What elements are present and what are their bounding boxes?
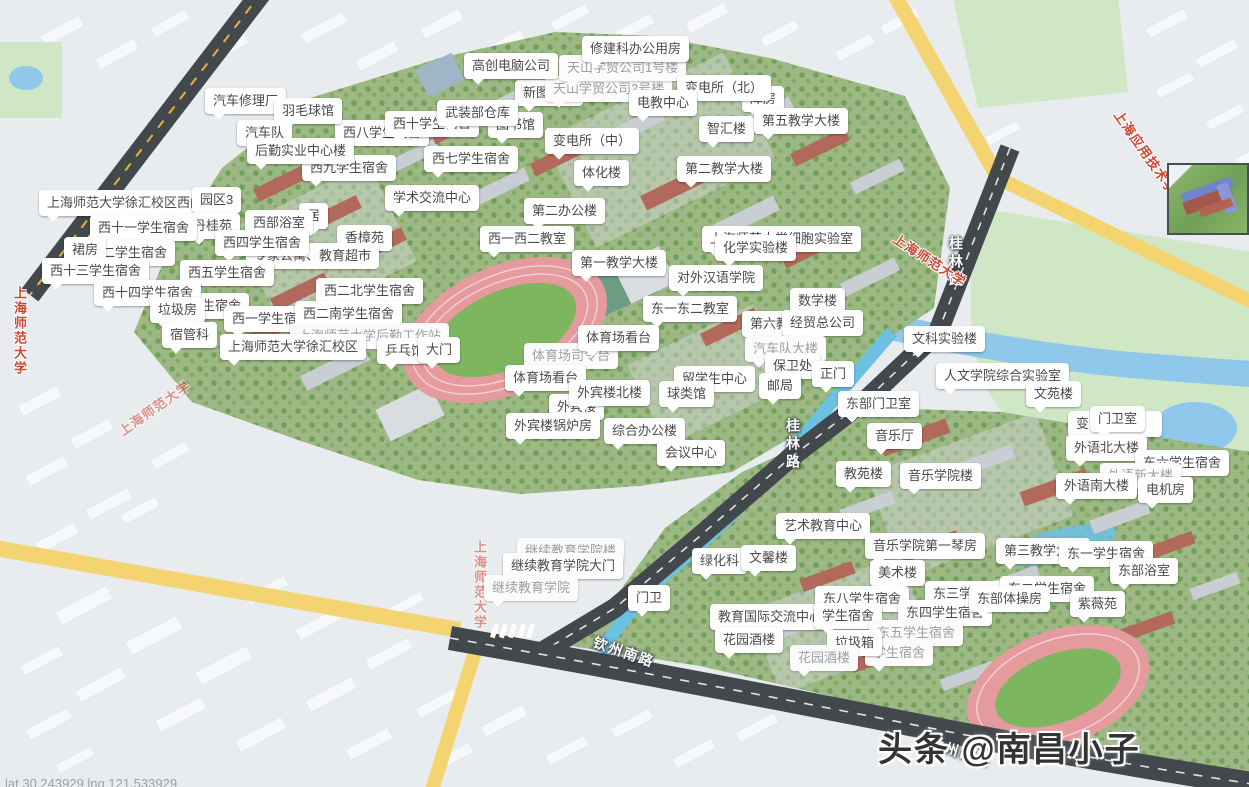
map-label[interactable]: 音乐学院第一琴房 bbox=[865, 533, 985, 559]
map-label[interactable]: 电教中心 bbox=[629, 90, 697, 116]
map-label[interactable]: 西七学生宿舍 bbox=[424, 146, 518, 172]
map-label[interactable]: 邮局 bbox=[759, 373, 801, 399]
map-label[interactable]: 武装部仓库 bbox=[437, 100, 518, 126]
map-label[interactable]: 后勤实业中心楼 bbox=[247, 138, 354, 164]
map-label[interactable]: 电机房 bbox=[1138, 477, 1193, 503]
coordinates-readout: lat 30.243929 lng 121.533929 bbox=[5, 776, 177, 787]
map-label[interactable]: 艺术教育中心 bbox=[776, 513, 870, 539]
map-label[interactable]: 修建科办公用房 bbox=[582, 36, 689, 62]
watermark: 头条 @南昌小子 bbox=[878, 722, 1141, 771]
map-label[interactable]: 门卫 bbox=[628, 585, 670, 611]
map-label[interactable]: 体育场看台 bbox=[578, 325, 659, 351]
map-label[interactable]: 东部浴室 bbox=[1110, 558, 1178, 584]
map-label[interactable]: 第二办公楼 bbox=[524, 198, 605, 224]
map-label[interactable]: 园区3 bbox=[192, 187, 241, 213]
map-label[interactable]: 西十一学生宿舍 bbox=[90, 215, 197, 241]
map-label[interactable]: 正门 bbox=[812, 361, 854, 387]
map-label[interactable]: 外语南大楼 bbox=[1056, 473, 1137, 499]
map-label[interactable]: 文科实验楼 bbox=[904, 326, 985, 352]
map-label[interactable]: 花园酒楼 bbox=[790, 645, 858, 671]
map-label[interactable]: 东部体操房 bbox=[969, 586, 1050, 612]
map-label[interactable]: 垃圾房 bbox=[150, 297, 205, 323]
map-label[interactable]: 大门 bbox=[418, 337, 460, 363]
poi-label: 上海师范大学 bbox=[10, 286, 29, 376]
map-label[interactable]: 花园酒楼 bbox=[715, 627, 783, 653]
map-label[interactable]: 东一东二教室 bbox=[643, 296, 737, 322]
map-label[interactable]: 上海师范大学徐汇校区西门 bbox=[39, 190, 211, 216]
campus-map[interactable]: 新图书馆天山学贸公司2号楼天山学贸公司1号楼修建科办公用房高创电脑公司库房变电所… bbox=[0, 0, 1249, 787]
map-label[interactable]: 会议中心 bbox=[657, 440, 725, 466]
map-label[interactable]: 球类馆 bbox=[659, 381, 714, 407]
map-label[interactable]: 文馨楼 bbox=[741, 545, 796, 571]
map-label[interactable]: 音乐厅 bbox=[867, 423, 922, 449]
map-label[interactable]: 西一西二教室 bbox=[480, 226, 574, 252]
minimap-thumbnail[interactable] bbox=[1167, 163, 1249, 235]
map-label[interactable]: 音乐学院楼 bbox=[900, 463, 981, 489]
map-label[interactable]: 第一教学大楼 bbox=[572, 250, 666, 276]
map-label[interactable]: 高创电脑公司 bbox=[464, 53, 558, 79]
map-label[interactable]: 化学实验楼 bbox=[715, 235, 796, 261]
map-label[interactable]: 外宾楼锅炉房 bbox=[506, 413, 600, 439]
map-label[interactable]: 第二教学大楼 bbox=[677, 156, 771, 182]
map-label[interactable]: 上海师范大学徐汇校区 bbox=[220, 334, 366, 360]
map-label[interactable]: 智汇楼 bbox=[699, 116, 754, 142]
map-label[interactable]: 教苑楼 bbox=[836, 461, 891, 487]
map-label[interactable]: 门卫室 bbox=[1090, 406, 1145, 432]
map-label[interactable]: 西四学生宿舍 bbox=[215, 230, 309, 256]
map-label[interactable]: 美术楼 bbox=[870, 560, 925, 586]
map-label[interactable]: 继续教育学院 bbox=[484, 575, 578, 601]
map-label[interactable]: 宿管科 bbox=[162, 322, 217, 348]
road-name-label: 桂林路 bbox=[783, 418, 803, 472]
map-label[interactable]: 经贸总公司 bbox=[782, 310, 863, 336]
map-label[interactable]: 第五教学大楼 bbox=[754, 108, 848, 134]
map-label[interactable]: 体化楼 bbox=[574, 160, 629, 186]
map-label[interactable]: 外宾楼北楼 bbox=[569, 380, 650, 406]
map-label[interactable]: 紫薇苑 bbox=[1070, 591, 1125, 617]
map-label[interactable]: 东部门卫室 bbox=[838, 391, 919, 417]
map-label[interactable]: 对外汉语学院 bbox=[669, 265, 763, 291]
map-label[interactable]: 绿化科 bbox=[692, 548, 747, 574]
map-label[interactable]: 学术交流中心 bbox=[385, 185, 479, 211]
map-label[interactable]: 变电所（中） bbox=[545, 128, 639, 154]
map-label[interactable]: 文苑楼 bbox=[1026, 381, 1081, 407]
